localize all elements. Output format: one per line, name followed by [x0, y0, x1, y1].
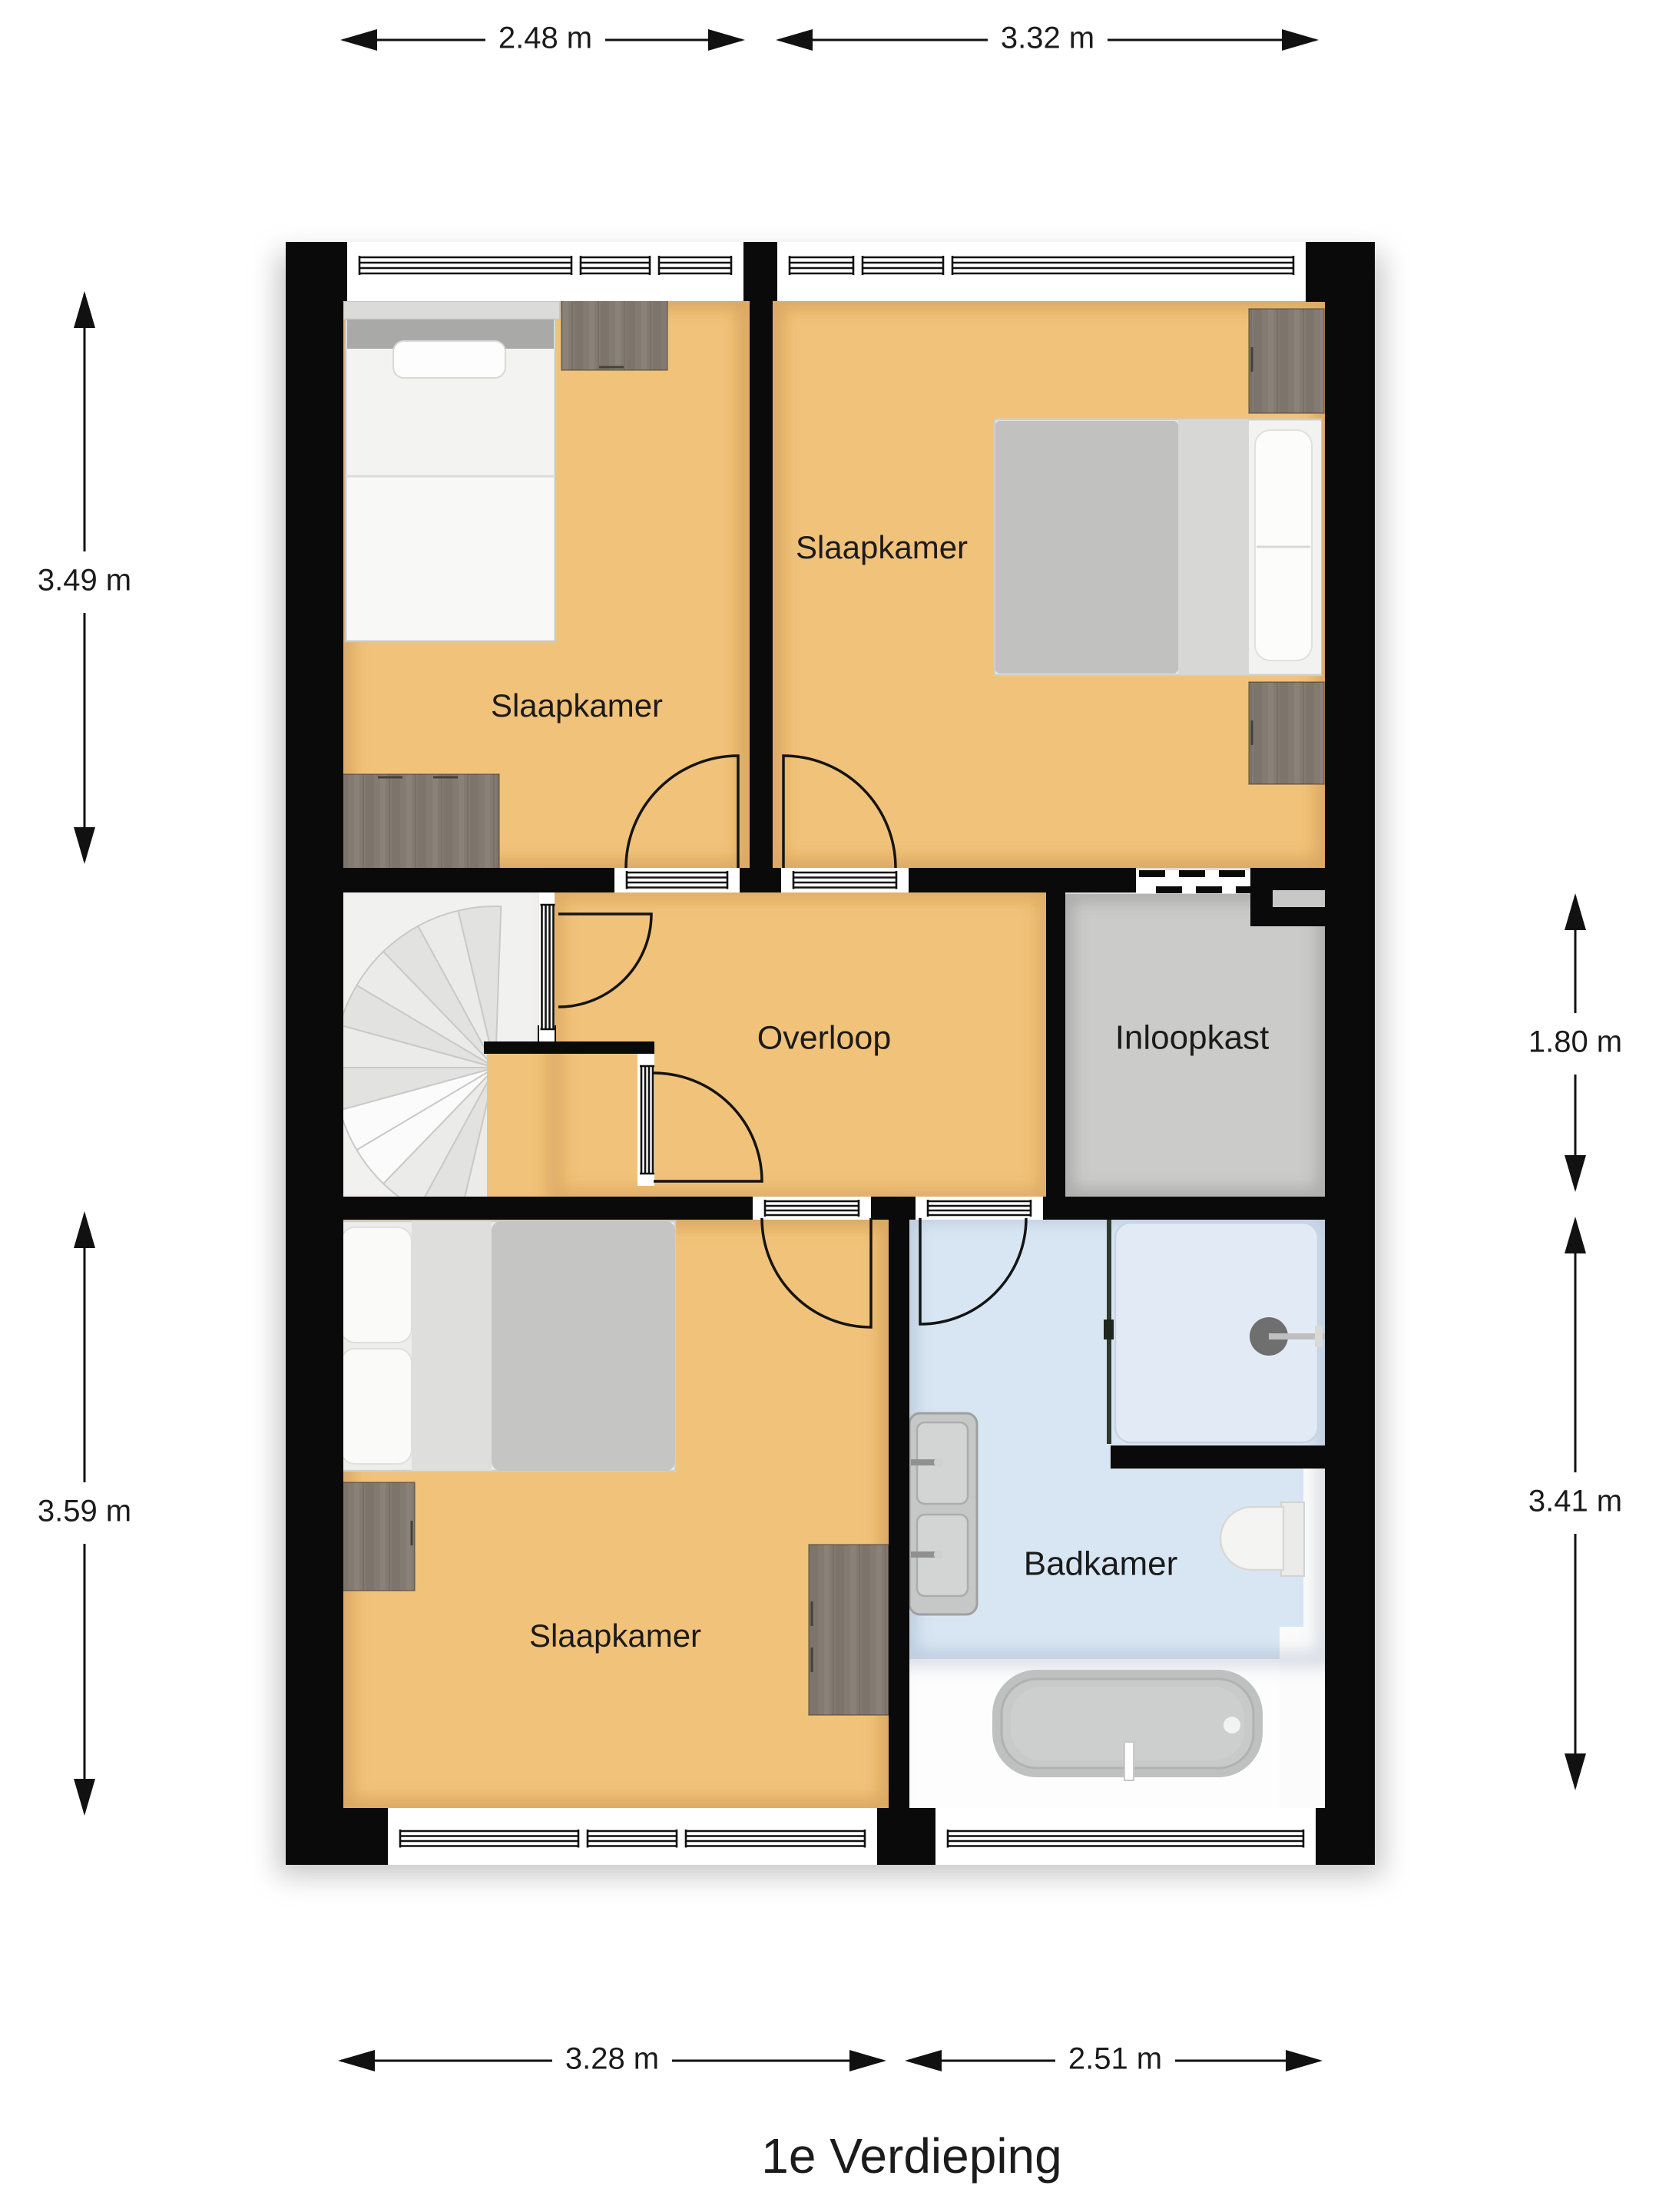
- svg-text:Slaapkamer: Slaapkamer: [491, 687, 663, 724]
- svg-text:Slaapkamer: Slaapkamer: [796, 529, 968, 565]
- svg-text:3.41 m: 3.41 m: [1528, 1485, 1622, 1518]
- svg-text:2.51 m: 2.51 m: [1068, 2042, 1162, 2076]
- svg-text:1.80 m: 1.80 m: [1528, 1025, 1622, 1059]
- svg-text:1e Verdieping: 1e Verdieping: [761, 2128, 1061, 2184]
- svg-text:3.49 m: 3.49 m: [38, 564, 131, 598]
- svg-text:3.59 m: 3.59 m: [38, 1495, 131, 1528]
- svg-text:Inloopkast: Inloopkast: [1115, 1019, 1270, 1057]
- svg-text:3.28 m: 3.28 m: [565, 2042, 659, 2076]
- svg-text:Slaapkamer: Slaapkamer: [529, 1618, 701, 1654]
- svg-text:3.32 m: 3.32 m: [1001, 22, 1094, 55]
- svg-text:Badkamer: Badkamer: [1024, 1545, 1178, 1583]
- svg-text:Overloop: Overloop: [757, 1019, 891, 1056]
- svg-text:2.48 m: 2.48 m: [498, 22, 592, 55]
